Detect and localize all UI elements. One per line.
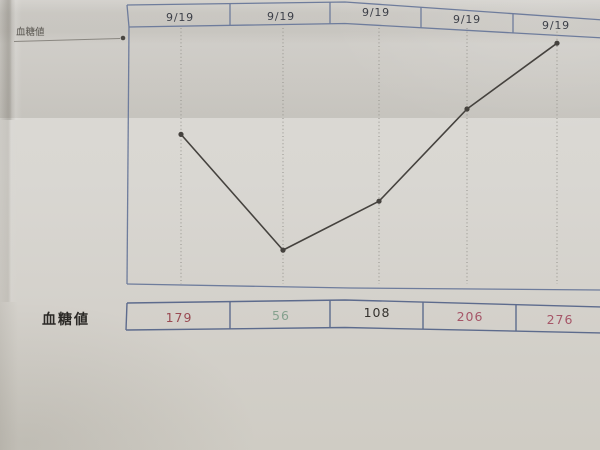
series-legend: 血糖値	[14, 26, 125, 42]
date-cell: 9/19	[542, 19, 570, 32]
data-point-marker	[554, 41, 559, 46]
date-cell: 9/19	[166, 11, 194, 24]
date-cell: 9/19	[453, 13, 481, 26]
value-row: 血糖値 179 56 108 206 276	[42, 300, 600, 333]
legend-line-sample	[14, 39, 120, 42]
glucose-value-cell: 276	[547, 312, 574, 327]
legend-point-marker	[121, 36, 126, 41]
date-cell: 9/19	[362, 6, 390, 19]
gridlines	[181, 28, 557, 284]
series-line	[181, 43, 557, 250]
glucose-value-cell: 179	[166, 310, 193, 325]
data-point-marker	[376, 199, 381, 204]
plot-left-border	[127, 27, 129, 284]
plot-area	[127, 27, 600, 290]
value-row-bottom-border	[126, 328, 600, 334]
date-cell: 9/19	[267, 10, 295, 23]
paper-photo: 9/19 9/19 9/19 9/19 9/19 血糖値 血糖値	[0, 0, 600, 450]
date-header-row: 9/19 9/19 9/19 9/19 9/19	[127, 2, 600, 38]
glucose-value-cell: 56	[272, 308, 290, 323]
glucose-value-cell: 206	[457, 309, 484, 324]
glucose-value-cell: 108	[364, 305, 391, 320]
value-row-label: 血糖値	[42, 311, 90, 328]
data-point-marker	[280, 248, 285, 253]
data-point-marker	[178, 132, 183, 137]
legend-label: 血糖値	[16, 26, 45, 38]
header-bottom-border	[129, 24, 600, 39]
plot-bottom-border	[127, 284, 600, 290]
series-points	[178, 41, 559, 253]
value-row-left-border	[126, 303, 127, 330]
header-left-border	[127, 5, 129, 27]
glucose-chart: 9/19 9/19 9/19 9/19 9/19 血糖値 血糖値	[0, 0, 600, 450]
data-point-marker	[464, 106, 469, 111]
